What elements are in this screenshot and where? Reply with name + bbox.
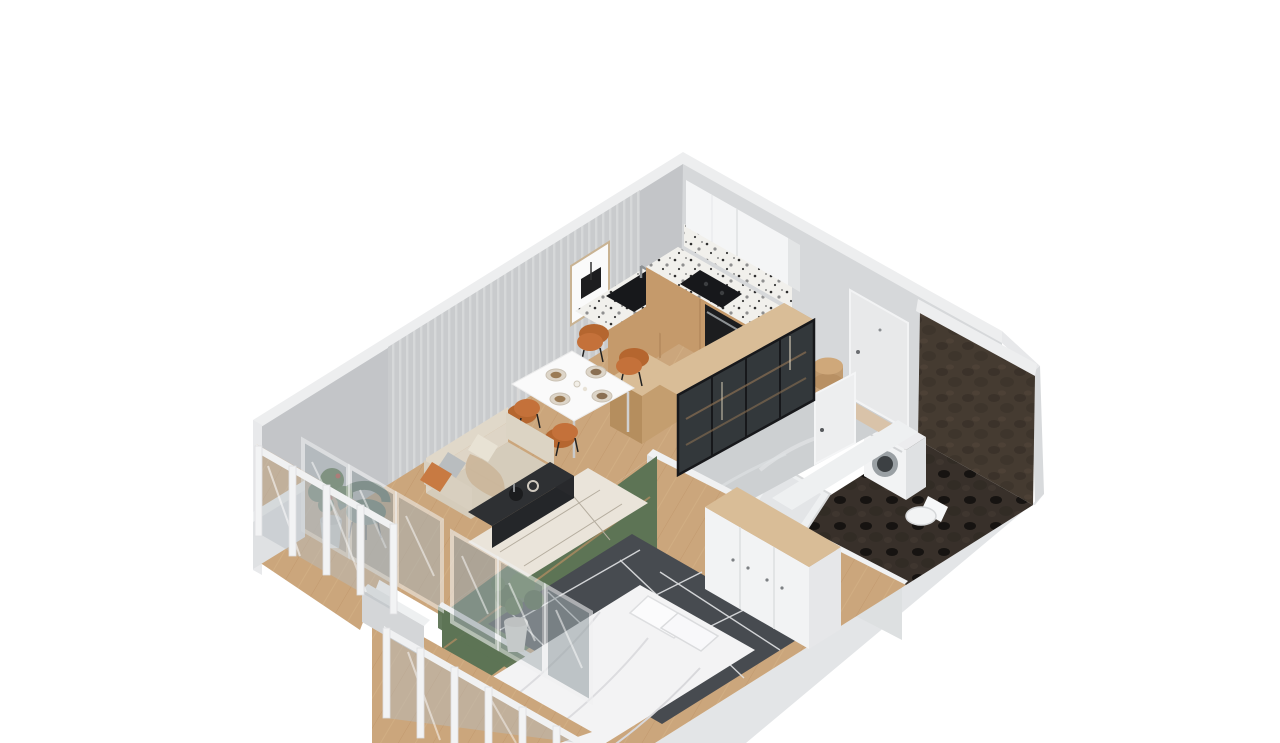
- decor-tray: [509, 487, 523, 501]
- place-setting: [592, 390, 612, 402]
- railing-post: [553, 726, 560, 743]
- door-handle-icon: [820, 428, 824, 432]
- railing-post: [255, 446, 262, 536]
- railing-post: [289, 466, 296, 556]
- door-handle-icon: [856, 350, 860, 354]
- isometric-scene: [0, 0, 1280, 743]
- floorplan-render: [0, 0, 1280, 743]
- railing-post: [417, 648, 424, 738]
- railing-post: [323, 485, 330, 575]
- place-setting: [550, 393, 570, 405]
- railing-post: [390, 524, 397, 614]
- railing-post: [357, 505, 364, 595]
- railing-post: [519, 707, 526, 743]
- railing-post: [383, 628, 390, 718]
- place-setting: [586, 366, 606, 378]
- railing-post: [451, 667, 458, 743]
- railing-post: [485, 687, 492, 743]
- place-setting: [546, 369, 566, 381]
